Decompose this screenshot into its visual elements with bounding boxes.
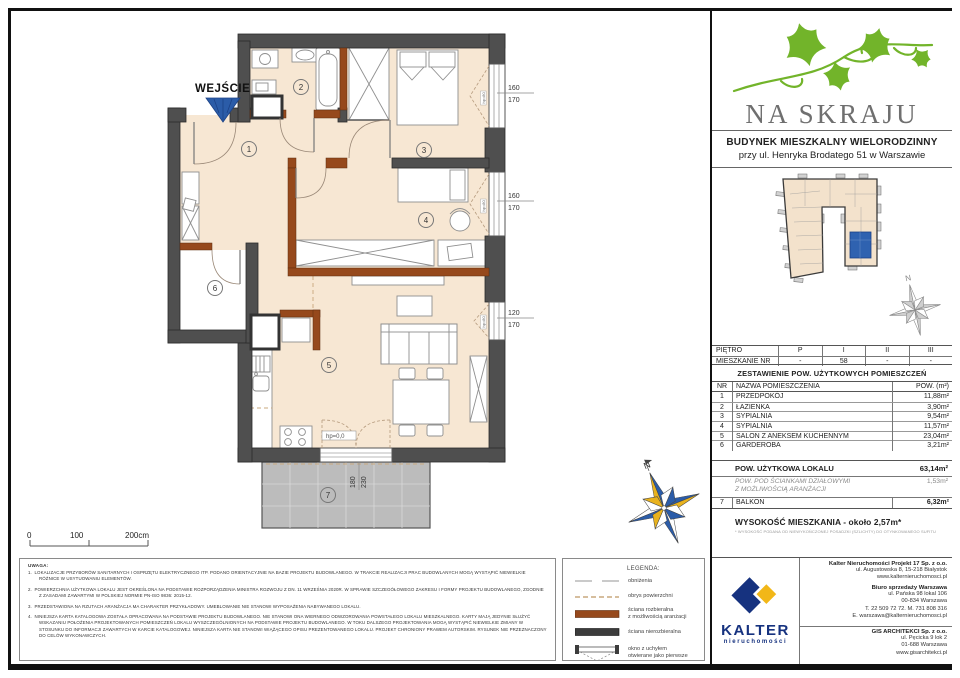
svg-text:230: 230 (361, 476, 368, 488)
legend-item-lowered: obniżenia (575, 576, 698, 586)
hall-wardrobe (182, 172, 199, 240)
area-row: 2ŁAZIENKA3,90m² (712, 402, 952, 412)
legend-item-outline: obrys powierzchni (575, 592, 698, 602)
kalter-brand-text: KALTER (721, 622, 790, 639)
area-outline-icon (575, 592, 621, 602)
single-bed (398, 168, 468, 202)
svg-text:5: 5 (327, 361, 332, 370)
area-row: 3SYPIALNIA9,54m² (712, 411, 952, 421)
svg-text:180: 180 (350, 476, 357, 488)
entrance-label: WEJŚCIE (195, 82, 250, 95)
hp-door-label: hp=0,0 (322, 431, 356, 440)
svg-text:100: 100 (70, 531, 84, 540)
sales-office-address: ul. Pańska 98 lokal 106 00-834 Warszawa … (800, 591, 947, 621)
washbasin (292, 48, 318, 62)
building-type: BUDYNEK MIESZKALNY WIELORODZINNY (712, 137, 952, 148)
svg-text:170: 170 (508, 205, 520, 212)
tilt-window-icon (575, 644, 621, 662)
area-row: 1PRZEDPOKÓJ11,88m² (712, 392, 952, 402)
built-in-closet (349, 48, 389, 120)
brand-name: NA SKRAJU (712, 99, 952, 130)
svg-text:1: 1 (247, 145, 252, 154)
svg-text:hp=0,0: hp=0,0 (326, 434, 345, 440)
bathtub (316, 48, 340, 110)
double-bed (397, 50, 458, 125)
area-table: NRNAZWA POMIESZCZENIAPOW. (m²) 1PRZEDPOK… (712, 381, 952, 450)
note-item: LOKALIZACJE PRZYBORÓW SANITARNYCH I OSPR… (28, 570, 547, 583)
stove (280, 426, 312, 448)
legend-box: LEGENDA: obniżenia obrys powierzchni ści… (562, 558, 705, 661)
area-row: 4SYPIALNIA11,57m² (712, 421, 952, 431)
kalter-sub-text: nieruchomości (724, 639, 787, 645)
svg-text:170: 170 (508, 322, 520, 329)
legend-item-removable-wall: ściana rozbieralna z możliwością aranżac… (575, 607, 698, 621)
tall-cabinet (470, 356, 487, 422)
legend-item-window: okno z uchyłem otwierane jako pierwsze (575, 644, 698, 662)
partition-area-row: POW. POD ŚCIANKAMI DZIAŁOWYMI Z MOŻLIWOŚ… (712, 476, 952, 498)
floor-row: PIĘTRO PI IIIII (712, 346, 952, 356)
svg-text:120: 120 (508, 310, 520, 317)
building-description: BUDYNEK MIESZKALNY WIELORODZINNY przy ul… (712, 130, 952, 168)
note-item: NINIEJSZA KARTA KATALOGOWA ZOSTAŁA OPRAC… (28, 614, 547, 640)
svg-text:2: 2 (299, 83, 304, 92)
kalter-hq-address: ul. Augustowska 8, 15-218 Białystok www.… (800, 567, 947, 582)
gis-address: ul. Pęcicka 9 lok 2 01-688 Warszawa www.… (800, 635, 947, 658)
kalter-logo: KALTER nieruchomości (712, 558, 800, 665)
svg-text:hp=80: hp=80 (481, 199, 486, 211)
svg-text:200cm: 200cm (125, 531, 149, 540)
apartment-height: WYSOKOŚĆ MIESZKANIA - około 2,57m* (735, 517, 946, 527)
floor-table: PIĘTRO PI IIIII MIESZKANIE NR -58 -- (712, 345, 952, 364)
dining-table (393, 380, 449, 424)
building-address: przy ul. Henryka Brodatego 51 w Warszawi… (712, 150, 952, 161)
compass-rose: N (609, 446, 710, 557)
note-item: POWIERZCHNIA UŻYTKOWA LOKALU JEST OKREŚL… (28, 587, 547, 600)
ivy-logo-icon (726, 17, 940, 103)
highlighted-unit (850, 232, 871, 258)
kalter-addresses: Kalter Nieruchomości Projekt 17 Sp. z o.… (800, 558, 952, 627)
site-compass-icon: N (882, 268, 946, 340)
sideboard (352, 276, 444, 285)
site-plan: N (712, 168, 952, 345)
svg-text:7: 7 (326, 491, 331, 500)
floor-plan: hp=80 hp=80 hp=80 hp=0,0 160170 160170 1… (0, 0, 710, 557)
contacts-section: KALTER nieruchomości Kalter Nieruchomośc… (712, 557, 952, 665)
fixed-wall-icon (575, 626, 621, 638)
bathroom-vanity (252, 80, 276, 94)
wardrobe-long (296, 240, 434, 266)
gis-architects: GIS ARCHITEKCI Sp. z o.o. ul. Pęcicka 9 … (800, 627, 952, 665)
svg-text:160: 160 (508, 193, 520, 200)
area-row: 6GARDEROBA3,21m² (712, 440, 952, 450)
info-panel: NA SKRAJU BUDYNEK MIESZKALNY WIELORODZIN… (710, 11, 952, 664)
total-area-row: POW. UŻYTKOWA LOKALU 63,14m² (712, 460, 952, 476)
svg-text:160: 160 (508, 85, 520, 92)
kalter-logo-icon (730, 576, 782, 620)
legend-title: LEGENDA: (627, 566, 698, 572)
kitchen-cabinet (282, 318, 310, 342)
site-compass-north-label: N (904, 273, 912, 283)
svg-text:6: 6 (213, 284, 218, 293)
desk (438, 240, 488, 266)
lowered-ceiling-icon (575, 576, 621, 586)
svg-text:4: 4 (424, 216, 429, 225)
height-section: WYSOKOŚĆ MIESZKANIA - około 2,57m* * WYS… (712, 508, 952, 557)
note-item: PRZEDSTAWIONA NA RZUTACH ARANŻACJA MA CH… (28, 604, 547, 610)
sofa (381, 324, 457, 364)
svg-text:3: 3 (422, 146, 427, 155)
coffee-table (397, 296, 432, 316)
area-table-header: NRNAZWA POMIESZCZENIAPOW. (m²) (712, 382, 952, 392)
area-table-title: ZESTAWIENIE POW. UŻYTKOWYCH POMIESZCZEŃ (712, 364, 952, 381)
site-plan-section: N (712, 168, 952, 345)
scale-bar: 0 100 200cm (27, 531, 149, 546)
notes-title: UWAGA: (28, 563, 547, 568)
removable-wall-icon (575, 608, 621, 620)
catalog-card-page: hp=80 hp=80 hp=80 hp=0,0 160170 160170 1… (0, 0, 960, 678)
svg-text:hp=80: hp=80 (481, 91, 486, 103)
brand-section: NA SKRAJU (712, 11, 952, 130)
svg-text:0: 0 (27, 531, 32, 540)
height-footnote: * WYSOKOŚĆ PODANA OD NIEWYKOŃCZONEJ POSA… (735, 529, 946, 534)
balcony (262, 462, 430, 528)
washing-machine (252, 50, 278, 68)
area-row: 5SALON Z ANEKSEM KUCHENNYM23,04m² (712, 431, 952, 441)
kitchen-counter (250, 350, 272, 448)
svg-text:hp=80: hp=80 (481, 315, 486, 327)
svg-text:170: 170 (508, 97, 520, 104)
notes-box: UWAGA: LOKALIZACJE PRZYBORÓW SANITARNYCH… (19, 558, 556, 661)
legend-item-fixed-wall: ściana nierozbieralna (575, 626, 698, 638)
balcony-row: 7 BALKON 6,32m² (712, 497, 952, 508)
